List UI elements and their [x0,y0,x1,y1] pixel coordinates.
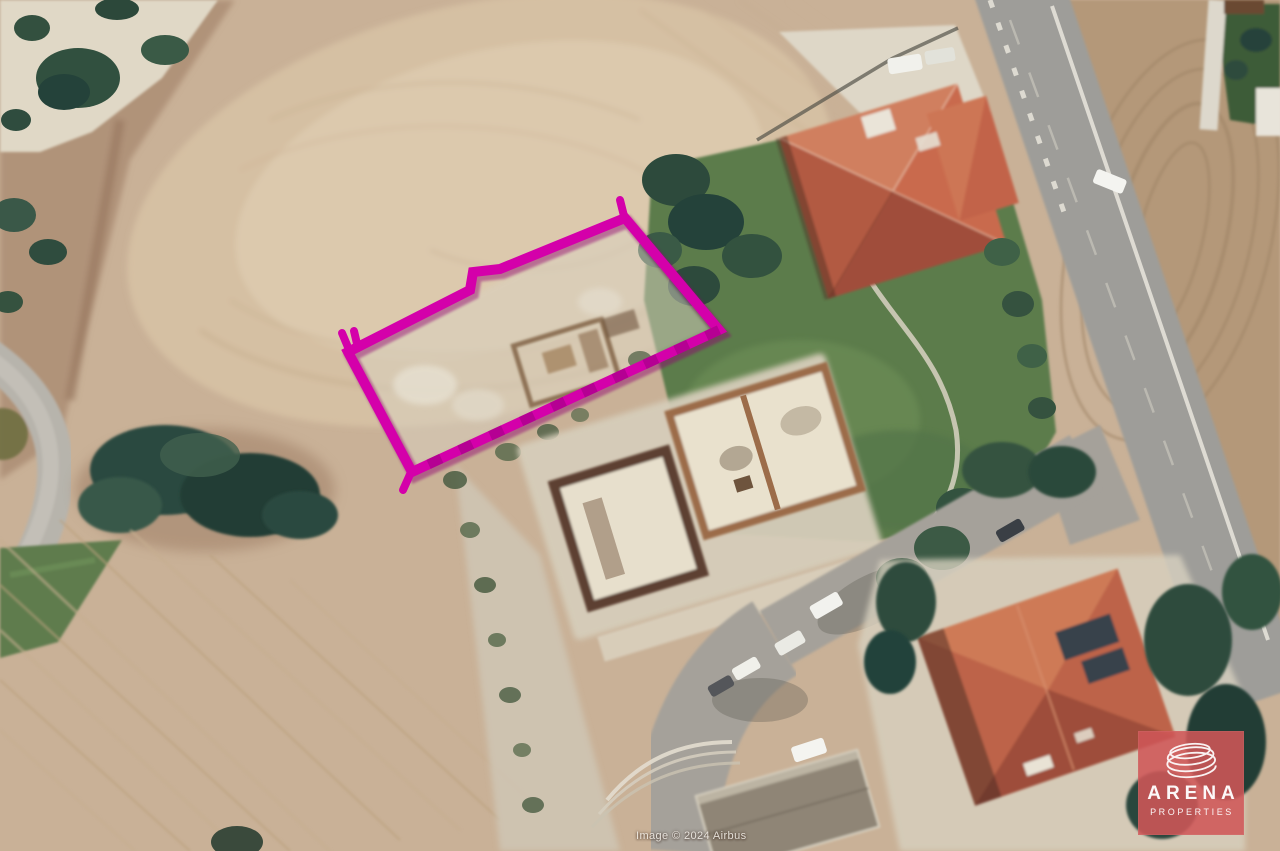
bush [499,687,521,703]
tree [38,74,90,110]
bush [460,522,480,538]
structure [1224,0,1264,14]
tree [1224,60,1248,80]
tree [14,15,50,41]
tree [1240,28,1272,52]
boundary-tick [354,331,358,348]
tree [262,491,338,539]
satellite-image: Image © 2024 Airbus ARENA PROPERTIES [0,0,1280,851]
bush [513,743,531,757]
lawn-northeast-corner [1199,0,1280,136]
tree [78,477,162,533]
boundary-tick [620,200,625,220]
arena-properties-logo: ARENA PROPERTIES [1138,731,1244,835]
hedge [1028,397,1056,419]
tree [876,562,936,642]
tree [864,630,916,694]
tree [141,35,189,65]
logo-tagline-text: PROPERTIES [1148,808,1234,817]
structure [1256,88,1280,136]
bush [443,471,467,489]
hedge [1002,291,1034,317]
tree [160,433,240,477]
tree [1144,584,1232,696]
bush [571,408,589,422]
bush [522,797,544,813]
bush [495,443,521,461]
bush [488,633,506,647]
tree [1222,554,1280,630]
hedge [984,238,1020,266]
hedge [1017,344,1047,368]
spiral-ellipses-icon [1163,740,1219,780]
tree [29,239,67,265]
imagery-attribution: Image © 2024 Airbus [636,830,747,842]
tree [722,234,782,278]
tree [1,109,31,131]
aerial-photo [0,0,1280,851]
tree [1028,446,1096,498]
bush [474,577,496,593]
logo-brand-text: ARENA [1142,784,1240,803]
